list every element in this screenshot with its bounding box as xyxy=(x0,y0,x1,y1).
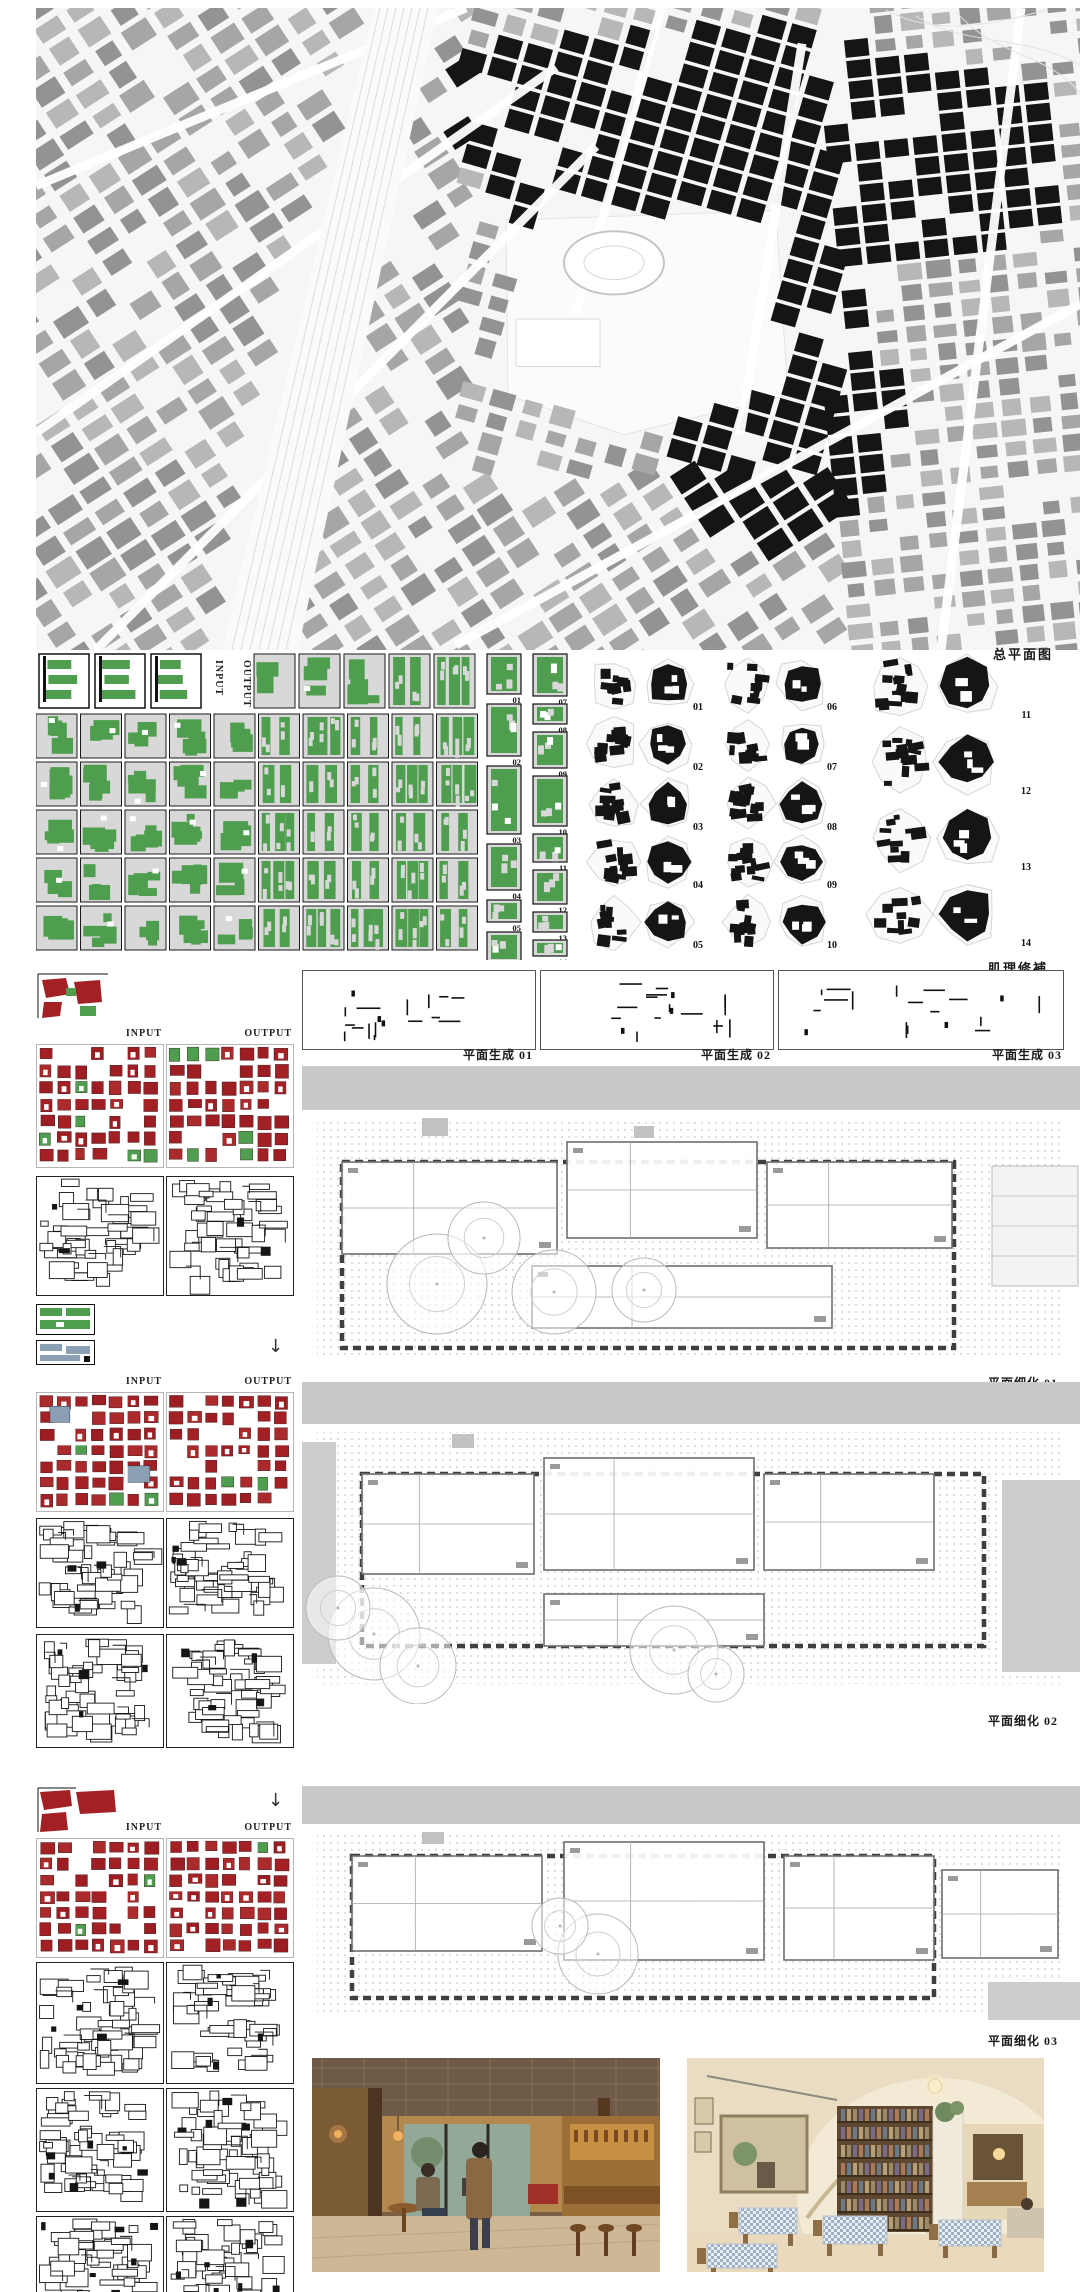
plan-generation-label-3: 平面生成 03 xyxy=(932,1046,1062,1063)
group3-outline-map-c xyxy=(36,2088,164,2212)
group2-outline-map-c xyxy=(36,1634,164,1748)
plan-generation-label-1: 平面生成 01 xyxy=(403,1046,533,1063)
group3-outline-map-d xyxy=(166,2088,294,2212)
group3-outline-map-e xyxy=(36,2216,164,2292)
group3-outline-map-f xyxy=(166,2216,294,2292)
group2-down-arrow: ↓ xyxy=(268,1336,283,1357)
group3-input-map xyxy=(36,1838,164,1958)
group3-down-arrow: ↓ xyxy=(268,1790,283,1811)
svg-text:08: 08 xyxy=(827,822,837,833)
svg-text:05: 05 xyxy=(693,940,703,951)
plan-refinement-label-2: 平面细化 02 xyxy=(988,1712,1058,1729)
svg-text:01: 01 xyxy=(693,702,703,713)
svg-text:14: 14 xyxy=(1021,938,1031,949)
block-cluster-panel: 0102030405060708091011121314 xyxy=(575,652,1062,960)
texture-grid-panel: 0102030405060708091011121314 xyxy=(36,652,576,960)
plan-generation-box-2 xyxy=(540,970,774,1050)
group1-output-map xyxy=(166,1044,294,1168)
group1-input-map xyxy=(36,1044,164,1168)
svg-text:10: 10 xyxy=(827,940,837,951)
plan-generation-box-1 xyxy=(302,970,536,1050)
svg-text:09: 09 xyxy=(827,880,837,891)
group1-output-label: OUTPUT xyxy=(238,1028,292,1039)
plan-refinement-label-3: 平面细化 03 xyxy=(988,2032,1058,2049)
svg-text:07: 07 xyxy=(827,762,837,773)
group1-input-thumbnail xyxy=(36,972,116,1022)
plan-refinement-strip-3 xyxy=(302,1786,1080,2026)
site-plan-map xyxy=(36,8,1080,650)
group2-output-map xyxy=(166,1392,294,1512)
svg-text:13: 13 xyxy=(1021,862,1031,873)
plan-refinement-strip-1 xyxy=(302,1066,1080,1366)
svg-text:11: 11 xyxy=(1022,710,1031,721)
bookshop-interior-photo xyxy=(687,2058,1044,2272)
group1-input-label: INPUT xyxy=(108,1028,162,1039)
group2-outline-map-a xyxy=(36,1518,164,1628)
presentation-board: 总平面图 0102030405060708091011121314 INPUT … xyxy=(0,0,1080,2292)
group1-outline-map-a xyxy=(36,1176,164,1296)
group1-outline-map-b xyxy=(166,1176,294,1296)
group2-input-map xyxy=(36,1392,164,1512)
svg-text:14: 14 xyxy=(559,957,568,960)
plan-refinement-strip-2 xyxy=(302,1382,1080,1704)
group2-outline-map-b xyxy=(166,1518,294,1628)
group3-output-map xyxy=(166,1838,294,1958)
group2-output-label: OUTPUT xyxy=(238,1376,292,1387)
svg-text:06: 06 xyxy=(827,702,837,713)
texture-output-label: OUTPUT xyxy=(241,660,252,708)
group3-input-label: INPUT xyxy=(108,1822,162,1833)
group2-input-thumbnail xyxy=(36,1304,100,1366)
group3-outline-map-a xyxy=(36,1962,164,2084)
plan-generation-label-2: 平面生成 02 xyxy=(641,1046,771,1063)
group2-outline-map-d xyxy=(166,1634,294,1748)
plan-generation-box-3 xyxy=(778,970,1064,1050)
texture-input-label: INPUT xyxy=(213,660,224,696)
svg-text:03: 03 xyxy=(693,822,703,833)
svg-text:04: 04 xyxy=(693,880,703,891)
group2-input-label: INPUT xyxy=(108,1376,162,1387)
group3-outline-map-b xyxy=(166,1962,294,2084)
cafe-interior-photo xyxy=(312,2058,660,2272)
svg-text:02: 02 xyxy=(693,762,703,773)
group3-output-label: OUTPUT xyxy=(238,1822,292,1833)
svg-text:12: 12 xyxy=(1021,786,1031,797)
